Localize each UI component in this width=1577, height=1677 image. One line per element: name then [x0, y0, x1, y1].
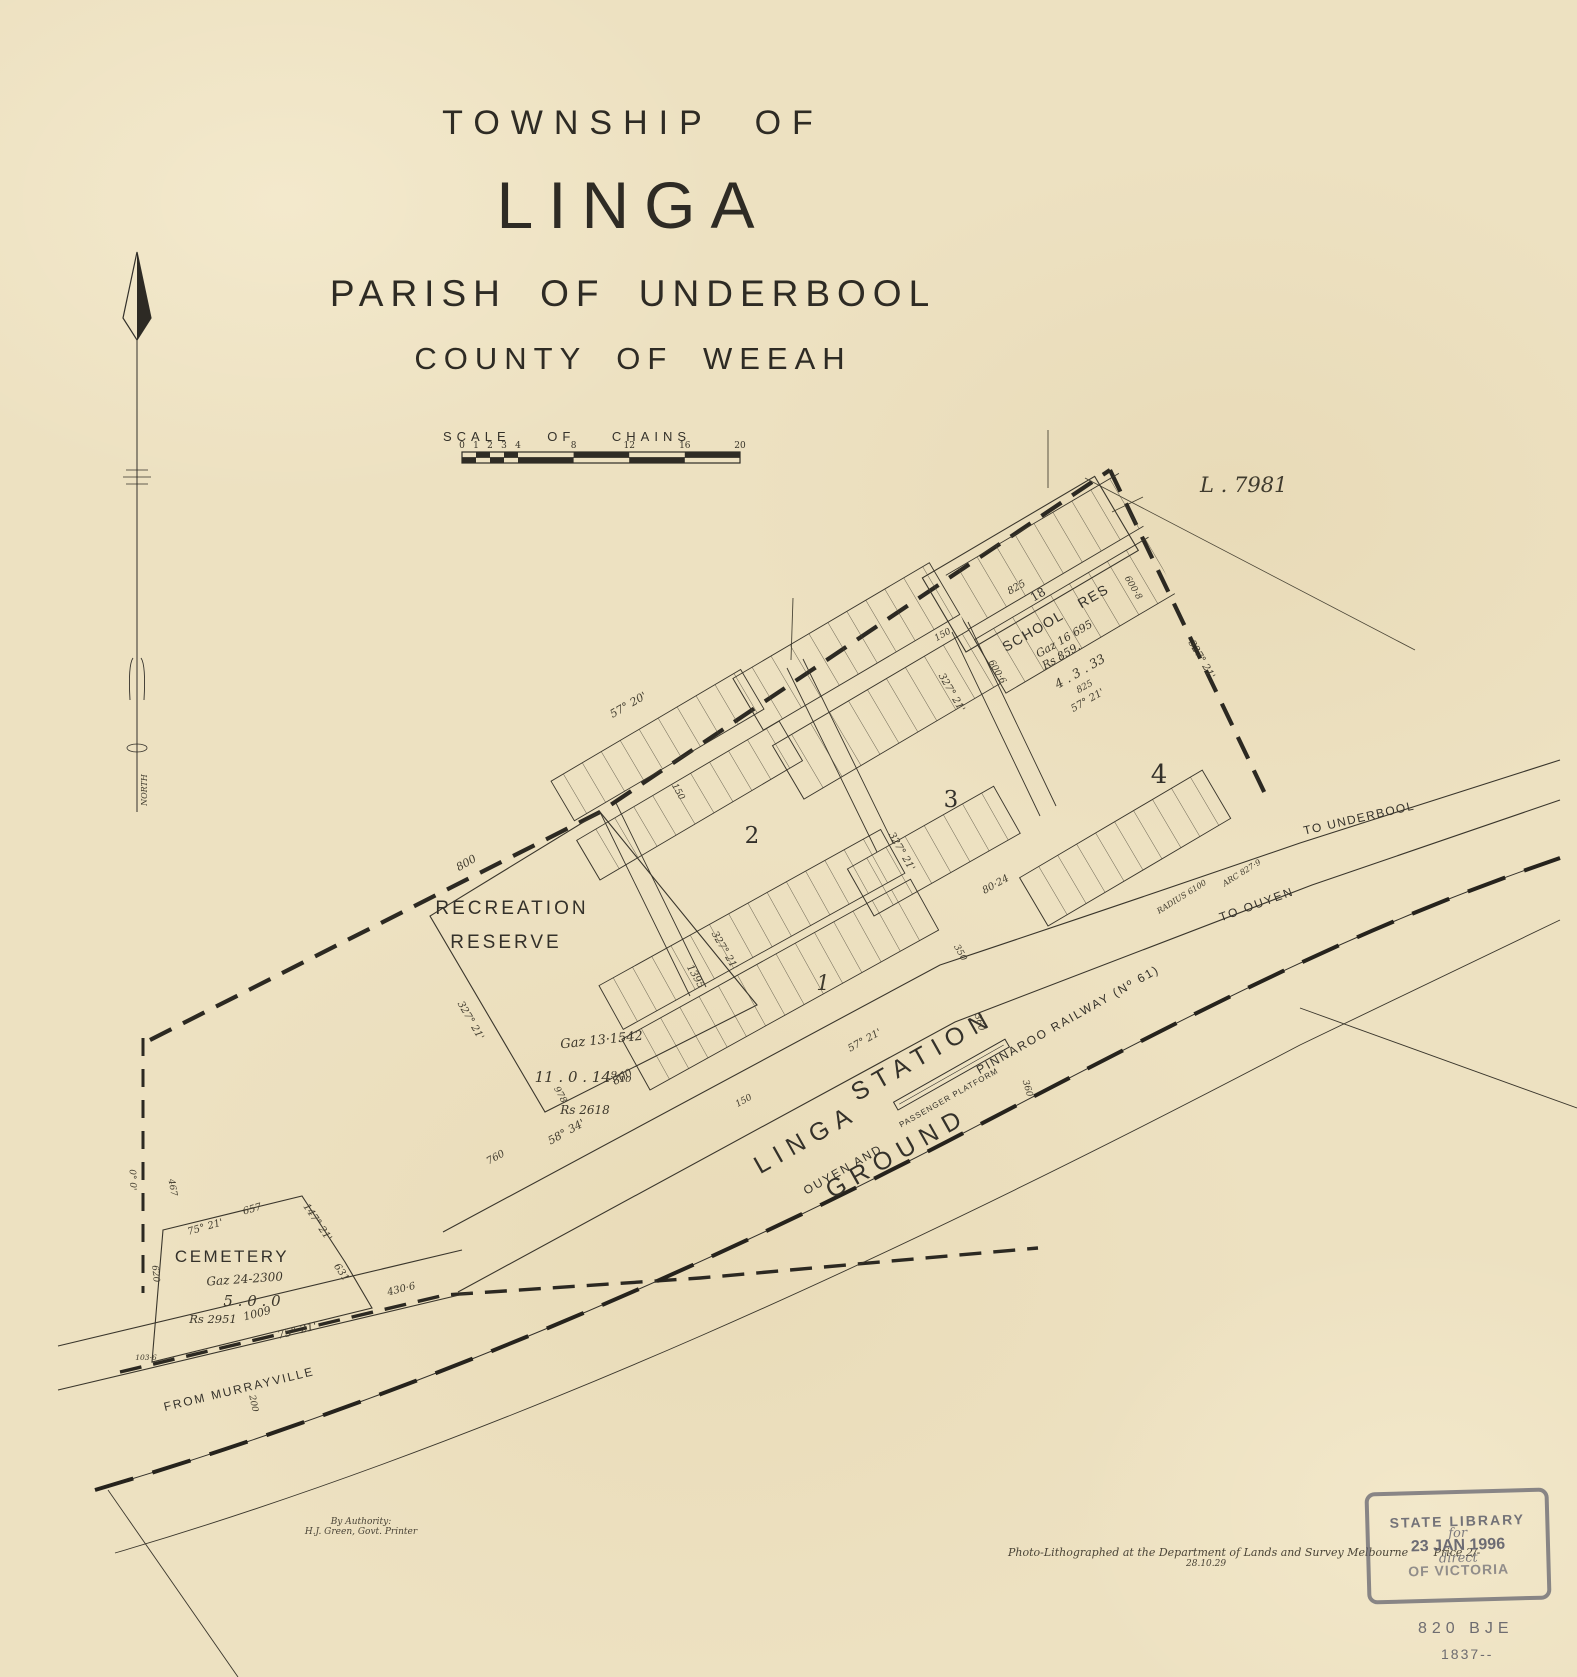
- map-annotation: 0° 0': [127, 1169, 138, 1191]
- section-number-1: 1: [816, 971, 829, 995]
- map-annotation: 57° 21': [846, 1027, 883, 1054]
- authority-line-2: H.J. Green, Govt. Printer: [296, 1527, 426, 1537]
- cemetery-label: CEMETERY: [175, 1247, 289, 1266]
- recreation-rs: Rs 2618: [559, 1103, 610, 1117]
- map-annotation: 467: [165, 1177, 178, 1197]
- catalog-number: 820 BJE: [1418, 1620, 1513, 1638]
- map-annotation: ARC 827·9: [1220, 858, 1262, 889]
- scale-tick: 2: [487, 441, 493, 451]
- section-number-3: 3: [944, 787, 959, 813]
- scale-tick: 3: [501, 441, 507, 451]
- scale-bar-segments: [462, 452, 740, 463]
- map-annotation: 360: [1020, 1079, 1034, 1099]
- map-annotation: 147° 21': [301, 1202, 334, 1244]
- north-label: NORTH: [140, 773, 149, 807]
- cemetery-gazette: Gaz 24-2300: [206, 1269, 284, 1288]
- map-annotation: 760: [485, 1148, 508, 1167]
- catalog-year: 1837--: [1441, 1646, 1493, 1662]
- scale-tick: 12: [623, 441, 634, 451]
- stamp-line-3: OF VICTORIA: [1408, 1562, 1509, 1579]
- library-stamp: STATE LIBRARY for 23 JAN 1996 direct OF …: [1364, 1487, 1551, 1604]
- recreation-label-1: RECREATION: [435, 898, 588, 919]
- scale-bar: SCALE OF CHAINS 0 1 2 3 4 8 12 16 20: [443, 429, 746, 463]
- authority-line-1: By Authority:: [296, 1517, 426, 1527]
- road-label-ouyen: TO OUYEN: [1217, 884, 1296, 924]
- map-annotation: 430·6: [385, 1281, 417, 1299]
- map-annotation: 150: [734, 1093, 754, 1110]
- plan-reference: L . 7981: [1199, 473, 1287, 497]
- map-annotation: 58° 34': [546, 1117, 587, 1148]
- north-arrow-icon: [123, 252, 151, 812]
- map-annotation: 75° 21': [186, 1217, 224, 1238]
- map-annotation: 80·24: [981, 873, 1011, 897]
- map-annotation: 327° 21': [1186, 638, 1217, 681]
- cemetery-rs: Rs 2951: [188, 1312, 236, 1326]
- railway-label-2: PINNAROO RAILWAY (Nº 61): [974, 962, 1162, 1077]
- map-annotation: 75° 21': [276, 1319, 318, 1341]
- section-number-2: 2: [745, 823, 760, 849]
- authority-imprint: By Authority: H.J. Green, Govt. Printer: [296, 1517, 426, 1537]
- scale-tick: 8: [571, 441, 577, 451]
- map-annotation: 57° 20': [608, 689, 649, 720]
- map-annotation: 327° 21': [455, 999, 486, 1042]
- map-annotation: 620: [149, 1265, 161, 1283]
- scale-tick: 16: [679, 441, 691, 451]
- road-label-underbool: TO UNDERBOOL: [1302, 798, 1416, 837]
- scale-bar-label: SCALE OF CHAINS: [443, 429, 691, 444]
- map-svg: SCALE OF CHAINS 0 1 2 3 4 8 12 16 20: [0, 0, 1577, 1677]
- map-annotation: 657: [242, 1202, 264, 1218]
- road-label-murrayville: FROM MURRAYVILLE: [162, 1364, 315, 1414]
- scale-tick: 4: [515, 441, 521, 451]
- recreation-label-2: RESERVE: [450, 932, 561, 953]
- section-number-4: 4: [1151, 760, 1168, 790]
- map-annotation: 800: [454, 852, 479, 874]
- litho-line: Photo-Lithographed at the Department of …: [1008, 1546, 1408, 1559]
- scale-tick: 20: [734, 441, 746, 451]
- map-annotation: 103·6: [135, 1353, 157, 1362]
- map-annotation: 200: [246, 1393, 260, 1413]
- scale-tick: 0: [459, 441, 465, 451]
- survey-plan-page: TOWNSHIP OF LINGA PARISH OF UNDERBOOL CO…: [0, 0, 1577, 1677]
- scale-tick: 1: [473, 441, 479, 451]
